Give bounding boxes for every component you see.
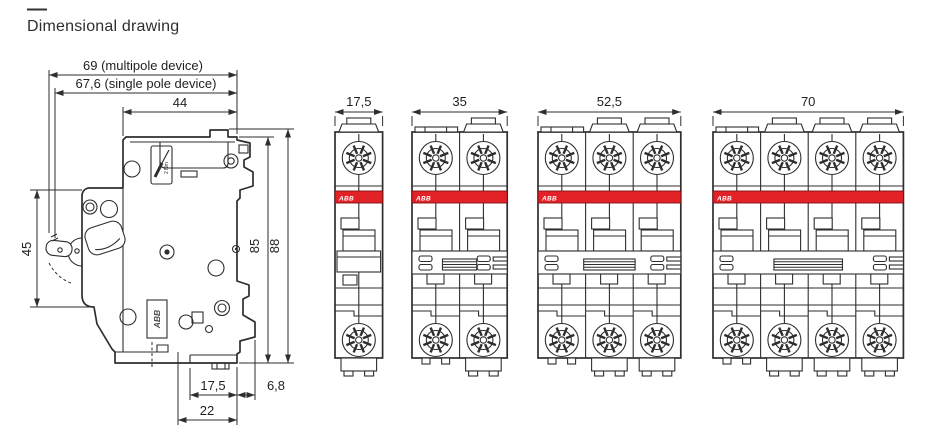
terminal-screw — [768, 142, 801, 175]
toggle — [546, 230, 578, 251]
width-dimension-label: 17,5 — [346, 94, 371, 109]
abb-red-band — [713, 191, 903, 203]
terminal-screw — [863, 324, 896, 357]
toggle — [864, 230, 896, 251]
terminal-screw — [419, 324, 452, 357]
bottom-terminal — [767, 358, 803, 371]
terminal-screw — [641, 324, 674, 357]
din-rail-foot — [115, 342, 237, 369]
dimensional-drawing-canvas: 2 Nm — [0, 0, 938, 445]
terminal-screw — [720, 142, 753, 175]
screwdriver-icon — [155, 163, 162, 177]
abb-band-logo: ABB — [415, 196, 431, 203]
terminal-screw — [545, 142, 578, 175]
dim-body-height: 85 — [247, 239, 262, 253]
terminal-screw — [720, 324, 753, 357]
top-terminal-flat — [716, 127, 759, 132]
side-view: 2 Nm — [19, 58, 294, 425]
toggle — [641, 230, 673, 251]
terminal-screw — [768, 324, 801, 357]
toggle — [420, 230, 452, 251]
abb-side-logo-text: ABB — [152, 310, 162, 329]
front-view-4pole: 70ABB — [713, 94, 903, 376]
abb-logo-box: ABB — [147, 300, 167, 338]
dim-clip-protrusion: 6,8 — [267, 378, 285, 393]
top-terminal-flat — [541, 127, 584, 132]
terminal-screw — [816, 142, 849, 175]
bottom-terminal — [466, 358, 502, 371]
dim-lower-depth: 22 — [200, 403, 214, 418]
dim-total-height: 88 — [267, 239, 282, 253]
top-terminal-cap — [765, 124, 805, 132]
bottom-terminal — [814, 358, 850, 371]
dim-width-singlepole: 67,6 (single pole device) — [76, 76, 217, 91]
toggle — [769, 230, 801, 251]
terminal-screw — [419, 142, 452, 175]
abb-band-logo: ABB — [338, 196, 354, 203]
terminal-screw — [342, 142, 375, 175]
bottom-terminal — [639, 358, 675, 371]
width-dimension-label: 70 — [801, 94, 815, 109]
bottom-terminal — [341, 358, 377, 371]
torque-box: 2 Nm — [151, 146, 172, 184]
top-terminal-flat — [415, 127, 458, 132]
dim-front-height: 45 — [19, 242, 34, 256]
front-views: 17,5ABB35ABB52,5ABB70ABB — [335, 94, 903, 376]
terminal-screw — [641, 142, 674, 175]
toggle — [721, 230, 753, 251]
terminal-screw — [816, 324, 849, 357]
top-terminal-cap — [590, 124, 630, 132]
abb-band-logo: ABB — [541, 196, 557, 203]
dim-din-slot: 17,5 — [200, 378, 225, 393]
abb-red-band — [538, 191, 681, 203]
page-title: Dimensional drawing — [27, 18, 179, 36]
header: — Dimensional drawing — [27, 0, 179, 36]
front-view-3pole: 52,5ABB — [538, 94, 681, 376]
terminal-screw — [467, 142, 500, 175]
front-view-1pole: 17,5ABB — [335, 94, 383, 376]
terminal-screw — [593, 324, 626, 357]
width-dimension-label: 52,5 — [597, 94, 622, 109]
toggle-mechanism — [45, 219, 127, 283]
toggle — [816, 230, 848, 251]
torque-label: 2 Nm — [164, 162, 170, 174]
top-terminal-cap — [812, 124, 852, 132]
toggle — [594, 230, 626, 251]
dimensional-drawing-page: — Dimensional drawing 2 Nm — [0, 0, 938, 445]
bottom-terminal — [862, 358, 898, 371]
terminal-screw — [593, 142, 626, 175]
terminal-screw — [545, 324, 578, 357]
toggle-handle — [337, 251, 381, 272]
toggle — [343, 230, 375, 251]
dim-width-multipole: 69 (multipole device) — [83, 58, 203, 73]
top-terminal-cap — [860, 124, 900, 132]
terminal-screw — [863, 142, 896, 175]
terminal-screw — [467, 324, 500, 357]
header-dash: — — [27, 0, 179, 18]
dim-upper-depth: 44 — [173, 95, 187, 110]
screwdriver-tip — [162, 150, 169, 163]
toggle — [468, 230, 500, 251]
width-dimension-label: 35 — [452, 94, 466, 109]
top-terminal-cap — [637, 124, 677, 132]
top-terminal-cap — [339, 124, 379, 132]
top-terminal-cap — [464, 124, 504, 132]
front-view-2pole: 35ABB — [412, 94, 507, 376]
terminal-screw — [342, 324, 375, 357]
toggle-knob — [83, 219, 128, 257]
side-body: 2 Nm — [45, 130, 255, 369]
abb-band-logo: ABB — [716, 196, 732, 203]
bottom-terminal — [592, 358, 628, 371]
